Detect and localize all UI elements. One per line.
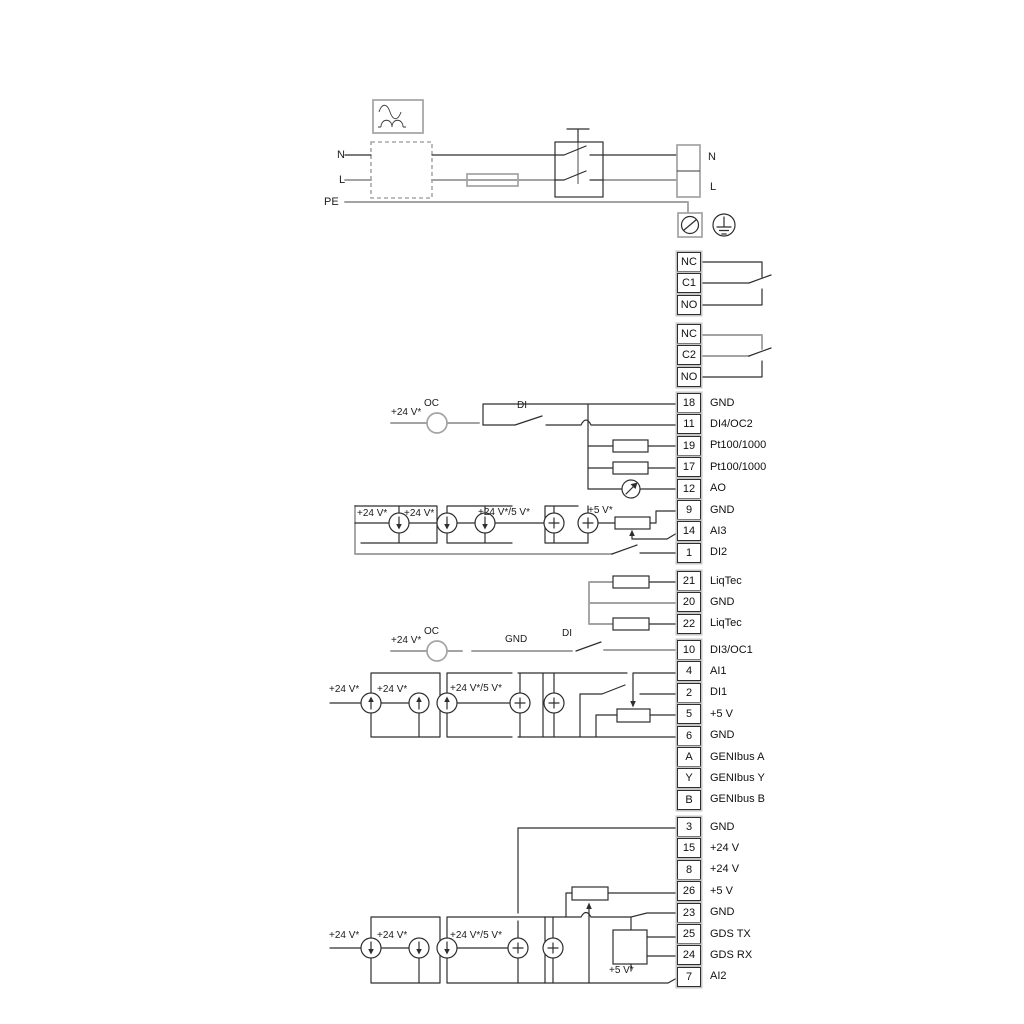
label-ai2-5v: +5 V* (609, 965, 634, 977)
terminal-io-top-19: 19 (677, 436, 701, 456)
terminal-io-mid-6: 6 (677, 726, 701, 746)
relay-2-wiring (702, 335, 771, 377)
terminal-liqtec-22: 22 (677, 614, 701, 634)
terminal-label-7: AI2 (710, 970, 727, 983)
label-di3: DI (562, 628, 572, 640)
terminal-label-15: +24 V (710, 842, 739, 855)
label-ai3-5v: +5 V* (588, 505, 613, 517)
terminal-label-18: GND (710, 397, 734, 410)
label-ai3-v24-5v: +24 V*/5 V* (478, 507, 530, 519)
earth-ground-icon (713, 214, 735, 236)
label-ai2-v24-a: +24 V* (329, 930, 359, 942)
terminal-label-8: +24 V (710, 863, 739, 876)
label-ai1-v24-5v: +24 V*/5 V* (450, 683, 502, 695)
terminal-io-mid-4: 4 (677, 661, 701, 681)
terminal-io-mid-B: B (677, 790, 701, 810)
current-source-icon (361, 938, 457, 958)
terminal-label-11: DI4/OC2 (710, 418, 753, 431)
terminal-io-bottom-26: 26 (677, 881, 701, 901)
ai1-feed (630, 673, 677, 708)
label-di4: DI (517, 400, 527, 412)
terminal-label-B: GENIbus B (710, 793, 765, 806)
terminal-io-top-17: 17 (677, 457, 701, 477)
mains-terminal-block (677, 145, 700, 197)
io-top-wiring (391, 404, 677, 498)
open-collector-icon-2 (427, 641, 447, 661)
label-ai3-v24-a: +24 V* (357, 508, 387, 520)
terminal-io-top-1: 1 (677, 543, 701, 563)
terminal-label-5: +5 V (710, 708, 733, 721)
terminal-io-top-9: 9 (677, 500, 701, 520)
terminal-io-bottom-25: 25 (677, 924, 701, 944)
terminal-io-top-14: 14 (677, 521, 701, 541)
terminal-io-mid-2: 2 (677, 683, 701, 703)
terminal-io-top-18: 18 (677, 393, 701, 413)
terminal-io-top-12: 12 (677, 479, 701, 499)
di3-switch (576, 642, 601, 651)
terminal-relay-2-NO: NO (677, 367, 701, 387)
power-section (345, 100, 735, 237)
label-ai3-v24-b: +24 V* (404, 508, 434, 520)
terminal-io-mid-5: 5 (677, 704, 701, 724)
label-l-left: L (339, 174, 345, 186)
terminal-label-12: AO (710, 482, 726, 495)
di3-wiring (391, 641, 677, 661)
terminal-io-top-11: 11 (677, 414, 701, 434)
terminal-io-bottom-8: 8 (677, 860, 701, 880)
terminal-relay-2-NC: NC (677, 324, 701, 344)
liqtec-sensor-1 (613, 576, 649, 588)
terminal-label-26: +5 V (710, 885, 733, 898)
terminal-label-19: Pt100/1000 (710, 439, 766, 452)
terminal-io-mid-Y: Y (677, 768, 701, 788)
terminal-label-17: Pt100/1000 (710, 461, 766, 474)
terminal-relay-1-NC: NC (677, 252, 701, 272)
pt100-resistor-2 (588, 462, 677, 474)
liqtec-wiring (589, 576, 677, 630)
terminal-io-bottom-15: 15 (677, 838, 701, 858)
label-n-right: N (708, 151, 716, 163)
terminal-relay-2-C2: C2 (677, 345, 701, 365)
analog-output-meter-icon (588, 480, 677, 498)
pt100-resistor-1 (588, 440, 677, 452)
label-l-right: L (710, 181, 716, 193)
label-oc1: OC (424, 398, 439, 410)
terminal-relay-1-NO: NO (677, 295, 701, 315)
voltage-source-icon (508, 938, 563, 958)
terminal-label-21: LiqTec (710, 575, 742, 588)
terminal-label-10: DI3/OC1 (710, 644, 753, 657)
label-ai1-v24-b: +24 V* (377, 684, 407, 696)
liqtec-sensor-2 (613, 618, 649, 630)
terminal-label-2: DI1 (710, 686, 727, 699)
voltage-source-icon (510, 693, 564, 713)
label-ai2-v24-5v: +24 V*/5 V* (450, 930, 502, 942)
terminal-io-bottom-3: 3 (677, 817, 701, 837)
ai1-potentiometer (596, 709, 677, 737)
ai2-gds-wiring (330, 828, 677, 983)
terminal-label-4: AI1 (710, 665, 727, 678)
terminal-io-mid-10: 10 (677, 640, 701, 660)
main-switch (555, 129, 603, 197)
filter-box (371, 142, 432, 198)
di2-switch (612, 545, 677, 554)
terminal-label-6: GND (710, 729, 734, 742)
terminal-label-22: LiqTec (710, 617, 742, 630)
label-oc2: OC (424, 626, 439, 638)
label-ai2-v24-b: +24 V* (377, 930, 407, 942)
relay-1-wiring (702, 262, 771, 305)
terminal-label-3: GND (710, 821, 734, 834)
terminal-label-A: GENIbus A (710, 751, 764, 764)
terminal-label-20: GND (710, 596, 734, 609)
terminal-label-9: GND (710, 504, 734, 517)
terminal-label-24: GDS RX (710, 949, 752, 962)
label-oc1-v24: +24 V* (391, 407, 421, 419)
label-pe: PE (324, 196, 339, 208)
di4-switch (483, 416, 677, 425)
terminal-io-mid-A: A (677, 747, 701, 767)
open-collector-icon-1 (427, 413, 447, 433)
terminal-label-Y: GENIbus Y (710, 772, 765, 785)
terminal-label-23: GND (710, 906, 734, 919)
ai1-di1-wiring (330, 673, 677, 737)
current-source-icon (361, 693, 457, 713)
terminal-io-bottom-23: 23 (677, 903, 701, 923)
terminal-io-bottom-24: 24 (677, 945, 701, 965)
label-oc2-v24: +24 V* (391, 635, 421, 647)
wiring-diagram: NCC1NONCC2NO18GND11DI4/OC219Pt100/100017… (0, 0, 1024, 1024)
pe-terminal (678, 213, 702, 237)
terminal-label-1: DI2 (710, 546, 727, 559)
terminal-label-25: GDS TX (710, 928, 751, 941)
terminal-label-14: AI3 (710, 525, 727, 538)
label-gnd-wire: GND (505, 634, 527, 646)
terminal-liqtec-20: 20 (677, 592, 701, 612)
label-n-left: N (337, 149, 345, 161)
terminal-relay-1-C1: C1 (677, 273, 701, 293)
label-ai1-v24-a: +24 V* (329, 684, 359, 696)
terminal-io-bottom-7: 7 (677, 967, 701, 987)
terminal-liqtec-21: 21 (677, 571, 701, 591)
ai3-potentiometer (615, 511, 677, 539)
mains-filter-icon (373, 100, 423, 133)
